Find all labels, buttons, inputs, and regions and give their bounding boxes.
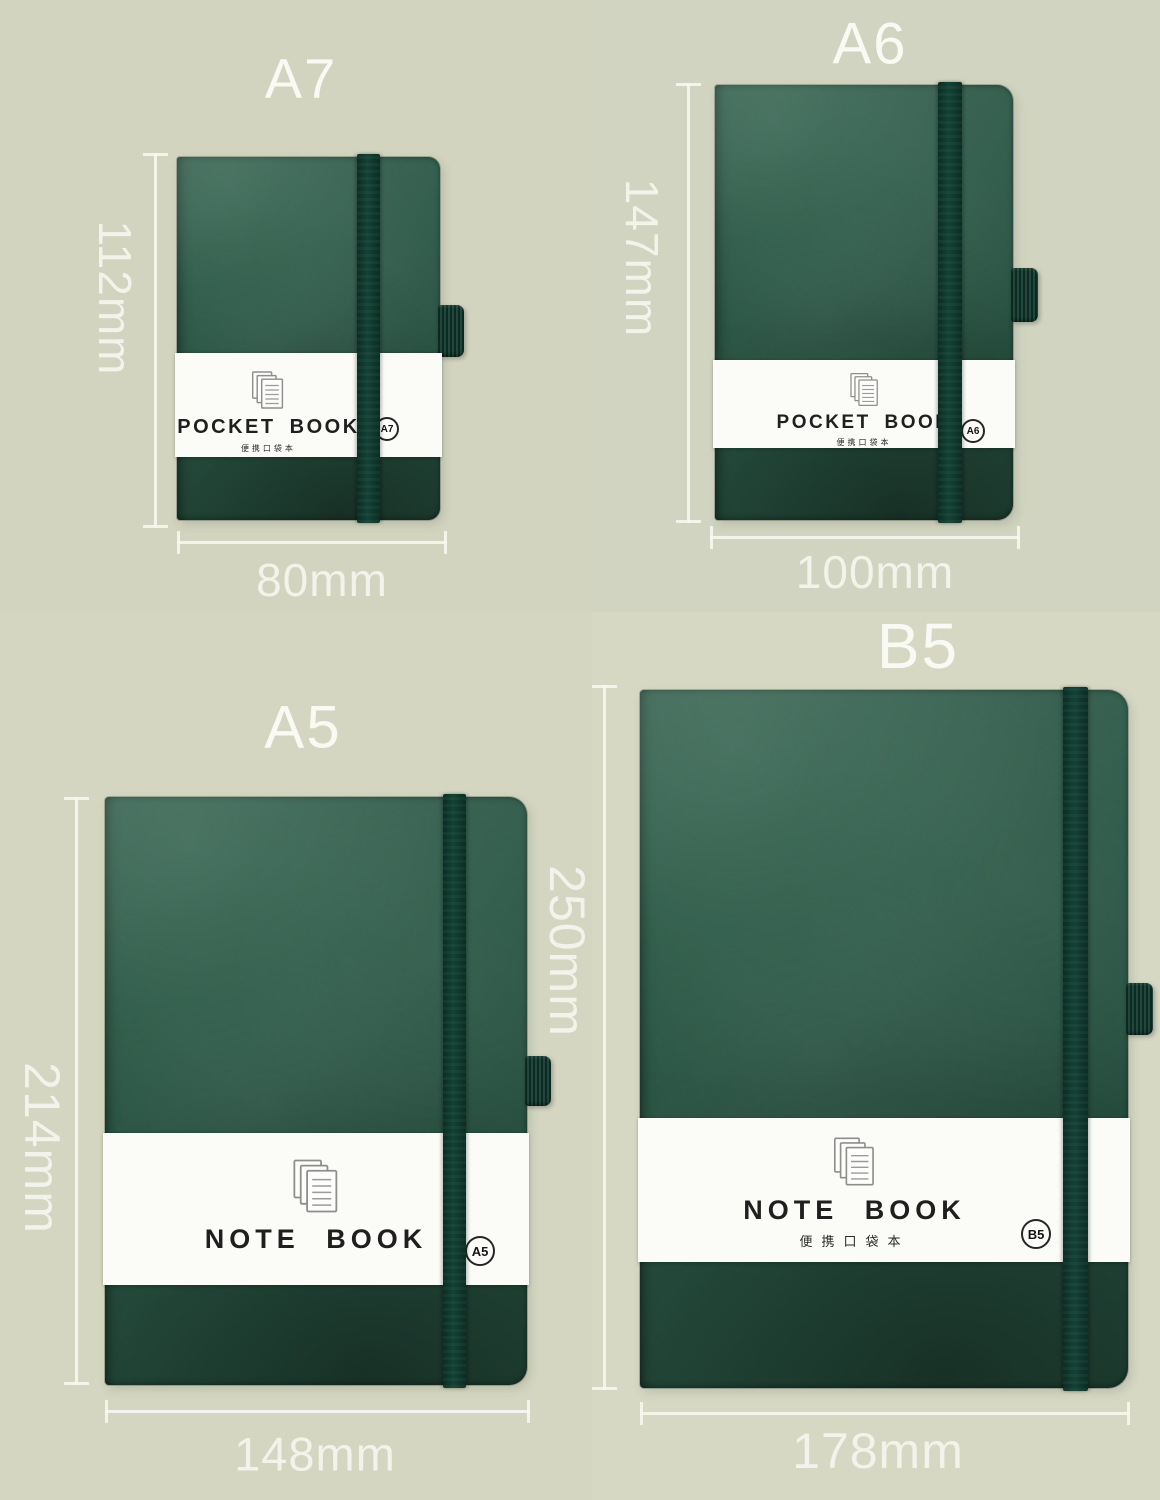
background-quadrant-top-right	[592, 0, 1160, 612]
background-quadrant-bottom-left	[0, 612, 592, 1500]
background-quadrant-top-left	[0, 0, 592, 612]
product-size-comparison-image: A7 112mm	[0, 0, 1160, 1500]
background-quadrant-bottom-right	[592, 612, 1160, 1500]
